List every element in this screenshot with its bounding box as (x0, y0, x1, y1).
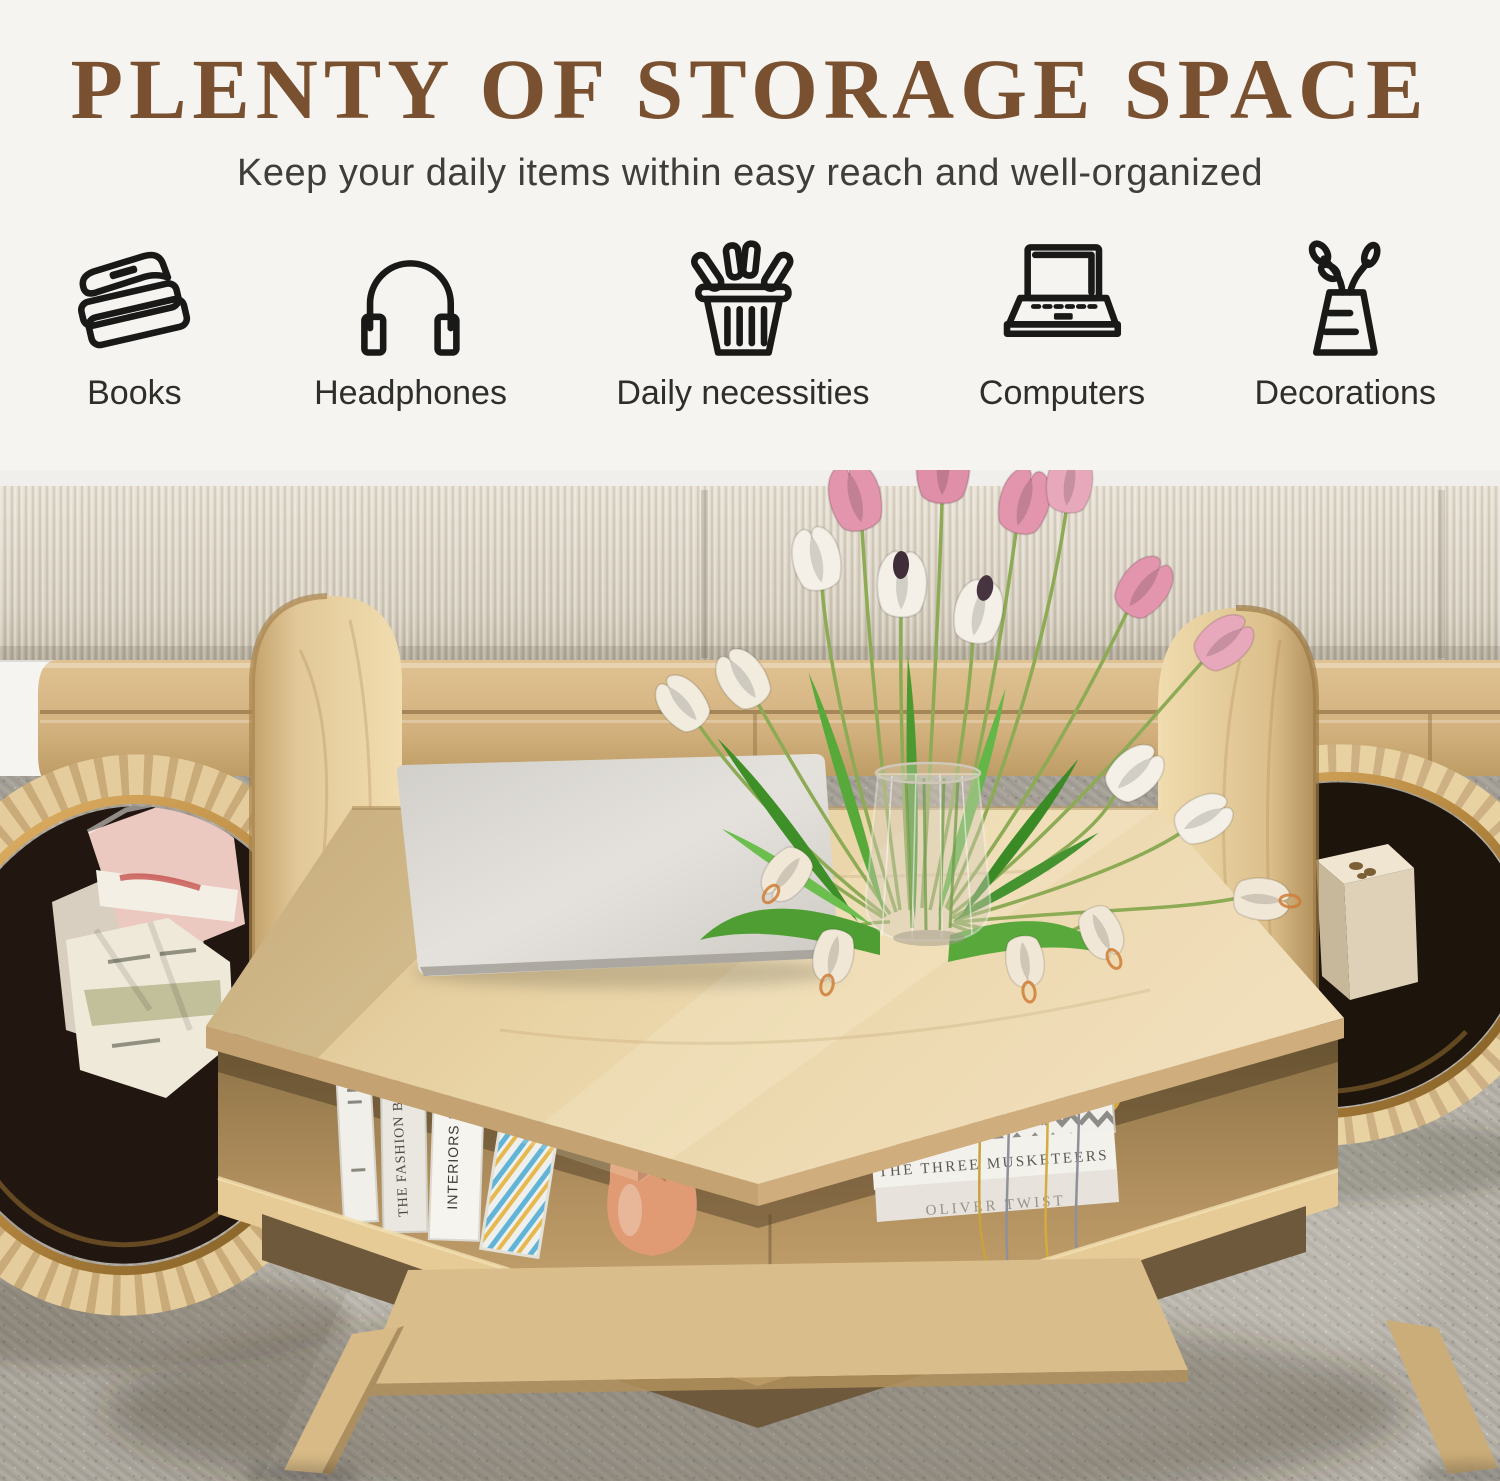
page-subtitle: Keep your daily items within easy reach … (0, 152, 1500, 195)
vase (866, 763, 990, 946)
plinth-base (362, 1258, 1188, 1384)
feature-label: Computers (979, 374, 1145, 413)
books-icon (64, 238, 205, 360)
laptop-icon (992, 238, 1133, 360)
feature-row: Books Headphones Dail (0, 238, 1500, 413)
feature-daily-necessities: Daily necessities (616, 238, 869, 413)
feature-label: Decorations (1255, 374, 1436, 413)
feature-label: Daily necessities (616, 374, 869, 413)
page-title: PLENTY OF STORAGE SPACE (0, 0, 1500, 134)
feature-headphones: Headphones (314, 238, 507, 413)
feature-decorations: Decorations (1255, 238, 1436, 413)
gift-box (1316, 844, 1418, 1000)
product-photo: THE FASHION BOOK INTERIORS NOW (0, 470, 1500, 1481)
feature-computers: Computers (979, 238, 1145, 413)
feature-label: Books (87, 374, 182, 413)
shopping-basket-icon (673, 238, 814, 360)
living-room-scene: THE FASHION BOOK INTERIORS NOW (0, 470, 1500, 1481)
feature-books: Books (64, 238, 205, 413)
product-infographic: PLENTY OF STORAGE SPACE Keep your daily … (0, 0, 1500, 1481)
vase-plant-icon (1275, 238, 1416, 360)
header: PLENTY OF STORAGE SPACE Keep your daily … (0, 0, 1500, 195)
headphones-icon (340, 238, 481, 360)
feature-label: Headphones (314, 374, 507, 413)
